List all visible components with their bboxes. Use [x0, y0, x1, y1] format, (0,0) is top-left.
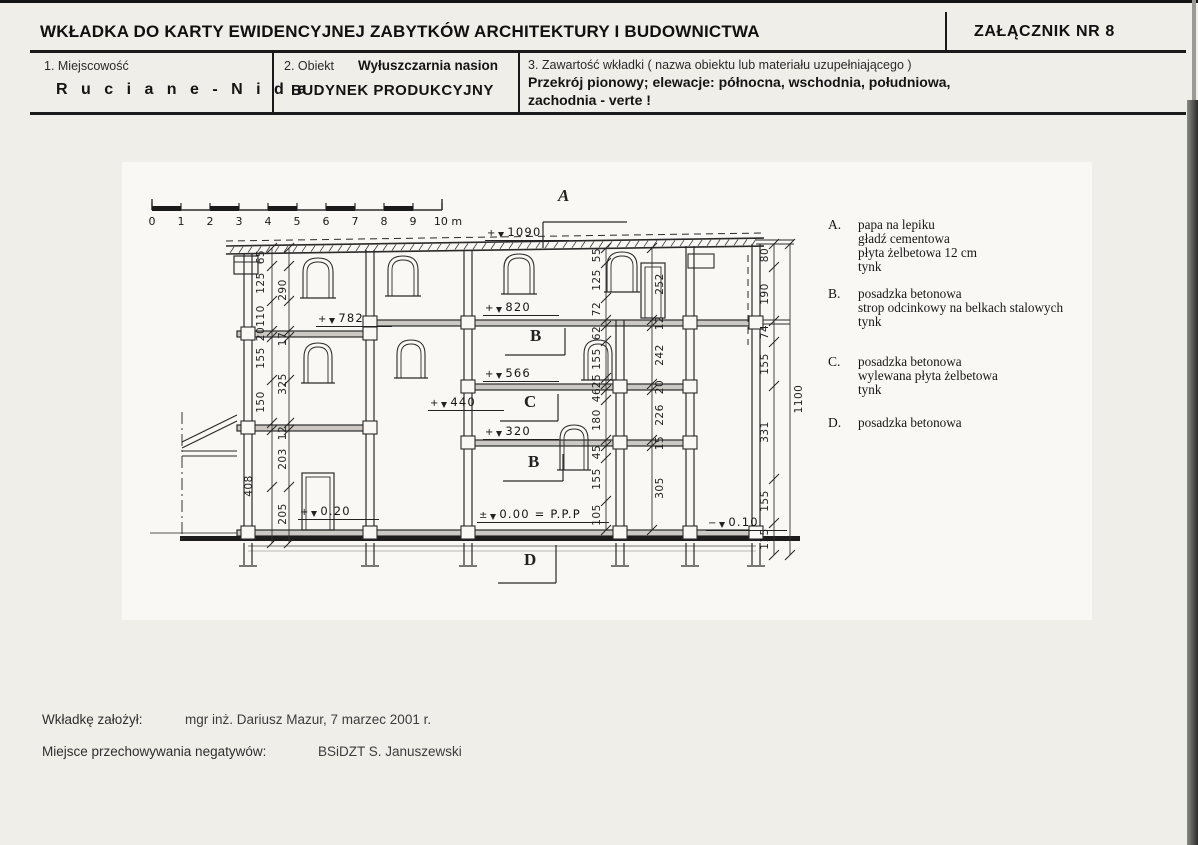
dimension-label: 115 — [759, 528, 771, 550]
scan-edge-right-top — [1192, 0, 1196, 100]
level-value: 820 — [505, 300, 531, 314]
dimension-label: 252 — [654, 273, 666, 295]
dimension-label: 226 — [654, 404, 666, 426]
level-mark: +320 — [483, 424, 559, 440]
level-mark: +440 — [428, 395, 504, 411]
dimension-label: 155 — [591, 468, 603, 490]
level-sign: − — [708, 518, 716, 529]
dimension-label: 45 — [591, 445, 603, 459]
footer-author-label: Wkładkę założył: — [42, 712, 143, 727]
footer-negatives-label: Miejsce przechowywania negatywów: — [42, 744, 266, 759]
level-mark: +820 — [483, 300, 559, 316]
legend-key-d: D. — [828, 415, 841, 431]
footer-author-value: mgr inż. Dariusz Mazur, 7 marzec 2001 r. — [185, 712, 431, 727]
level-sign: + — [487, 228, 495, 239]
legend-line: strop odcinkowy na belkach stalowych — [858, 300, 1063, 316]
legend-line: tynk — [858, 259, 881, 275]
level-sign: + — [300, 507, 308, 518]
legend-key-c: C. — [828, 354, 840, 370]
field-divider-1 — [272, 53, 274, 112]
fields-rule — [30, 112, 1186, 115]
dimension-label: 55 — [591, 248, 603, 262]
level-value: 0.20 — [320, 504, 350, 518]
scale-tick: 8 — [381, 215, 388, 228]
dimension-label: 290 — [277, 279, 289, 301]
level-value: 0.10 — [728, 515, 758, 529]
dimension-label: 242 — [654, 344, 666, 366]
scale-tick: 10 m — [434, 215, 462, 228]
scale-tick: 6 — [323, 215, 330, 228]
dimension-label: 180 — [591, 409, 603, 431]
dimension-label: 72 — [591, 302, 603, 316]
legend-line: tynk — [858, 314, 881, 330]
field3-line2: zachodnia - verte ! — [528, 92, 651, 108]
dimension-label: 203 — [277, 448, 289, 470]
field3-line1: Przekrój pionowy; elewacje: północna, ws… — [528, 74, 950, 90]
dimension-label: 125 — [591, 269, 603, 291]
scan-edge-right — [1187, 100, 1198, 845]
legend-key-b: B. — [828, 286, 840, 302]
level-sign: + — [485, 369, 493, 380]
level-arrow-icon — [311, 511, 317, 517]
field-divider-2 — [518, 53, 520, 112]
field2-object: Wyłuszczarnia nasion — [358, 58, 498, 73]
section-label-ground: D — [524, 550, 537, 570]
scale-tick: 7 — [352, 215, 359, 228]
legend-line: posadzka betonowa — [858, 415, 962, 431]
dimension-label: 155 — [591, 348, 603, 370]
field3-label: 3. Zawartość wkładki ( nazwa obiektu lub… — [528, 58, 912, 72]
level-arrow-icon — [496, 431, 502, 437]
dimension-label: 325 — [277, 373, 289, 395]
level-value: 1090 — [507, 225, 541, 239]
dimension-label: 12 — [277, 426, 289, 440]
section-drawing-area: 0 1 2 3 4 5 6 7 8 9 10 m +1090 +820 +782… — [122, 162, 1092, 620]
level-mark: −0.10 — [706, 515, 787, 531]
level-value: 782 — [338, 311, 364, 325]
dimension-label: 80 — [759, 248, 771, 262]
dimension-label: 74 — [759, 325, 771, 339]
dimension-label-total: 1100 — [793, 385, 805, 414]
dimension-label: 110 — [255, 305, 267, 327]
level-value: 0.00 = P.P.P — [499, 507, 581, 521]
dimension-label: 20 — [255, 327, 267, 341]
level-sign: + — [318, 314, 326, 325]
level-arrow-icon — [496, 373, 502, 379]
dimension-label: 305 — [654, 477, 666, 499]
record-card-page: WKŁADKA DO KARTY EWIDENCYJNEJ ZABYTKÓW A… — [0, 0, 1198, 845]
dimension-label: 155 — [759, 353, 771, 375]
level-value: 320 — [505, 424, 531, 438]
dimension-label: 17 — [277, 332, 289, 346]
scale-tick: 4 — [265, 215, 272, 228]
level-mark: ±0.00 = P.P.P — [477, 507, 609, 523]
header-divider — [945, 12, 947, 51]
dimension-label: 65 — [255, 250, 267, 264]
section-label-upper: B — [530, 326, 542, 346]
level-sign: ± — [479, 510, 487, 521]
level-arrow-icon — [329, 318, 335, 324]
dimension-label: 205 — [277, 503, 289, 525]
dimension-label: 125 — [255, 272, 267, 294]
page-title: WKŁADKA DO KARTY EWIDENCYJNEJ ZABYTKÓW A… — [40, 22, 760, 42]
level-arrow-icon — [498, 232, 504, 238]
level-mark: +566 — [483, 366, 559, 382]
level-arrow-icon — [719, 522, 725, 528]
scale-tick: 9 — [410, 215, 417, 228]
field2-label: 2. Obiekt — [284, 59, 334, 73]
dimension-label: 46 — [591, 388, 603, 402]
level-mark: +1090 — [485, 225, 569, 241]
dimension-label: 15 — [654, 436, 666, 450]
section-label-lower: B — [528, 452, 540, 472]
attachment-number: ZAŁĄCZNIK NR 8 — [974, 23, 1115, 41]
legend-line: tynk — [858, 382, 881, 398]
section-label-roof: A — [558, 186, 570, 206]
dimension-label: 62 — [591, 326, 603, 340]
scale-tick: 0 — [149, 215, 156, 228]
dimension-label: 190 — [759, 283, 771, 305]
level-arrow-icon — [496, 307, 502, 313]
level-mark: +0.20 — [298, 504, 379, 520]
level-sign: + — [430, 398, 438, 409]
scale-tick: 5 — [294, 215, 301, 228]
level-value: 566 — [505, 366, 531, 380]
field2-value: BUDYNEK PRODUKCYJNY — [291, 82, 494, 99]
level-value: 440 — [450, 395, 476, 409]
dimension-label: 150 — [255, 391, 267, 413]
scale-tick: 3 — [236, 215, 243, 228]
field1-label: 1. Miejscowość — [44, 59, 129, 73]
dimension-label: 20 — [654, 380, 666, 394]
scale-tick: 2 — [207, 215, 214, 228]
level-sign: + — [485, 427, 493, 438]
header-rule — [30, 50, 1186, 53]
section-label-middle: C — [524, 392, 537, 412]
scale-tick: 1 — [178, 215, 185, 228]
level-arrow-icon — [441, 402, 447, 408]
dimension-label: 155 — [255, 347, 267, 369]
dimension-label: 25 — [591, 374, 603, 388]
footer-negatives-value: BSiDZT S. Januszewski — [318, 744, 462, 759]
dimension-label: 408 — [243, 475, 255, 497]
level-mark: +782 — [316, 311, 392, 327]
dimension-label: 12 — [654, 316, 666, 330]
dimension-label: 331 — [759, 421, 771, 443]
legend-key-a: A. — [828, 217, 841, 233]
level-arrow-icon — [490, 514, 496, 520]
dimension-label: 155 — [759, 490, 771, 512]
scan-edge-top — [0, 0, 1198, 3]
dimension-label: 105 — [591, 504, 603, 526]
level-sign: + — [485, 303, 493, 314]
